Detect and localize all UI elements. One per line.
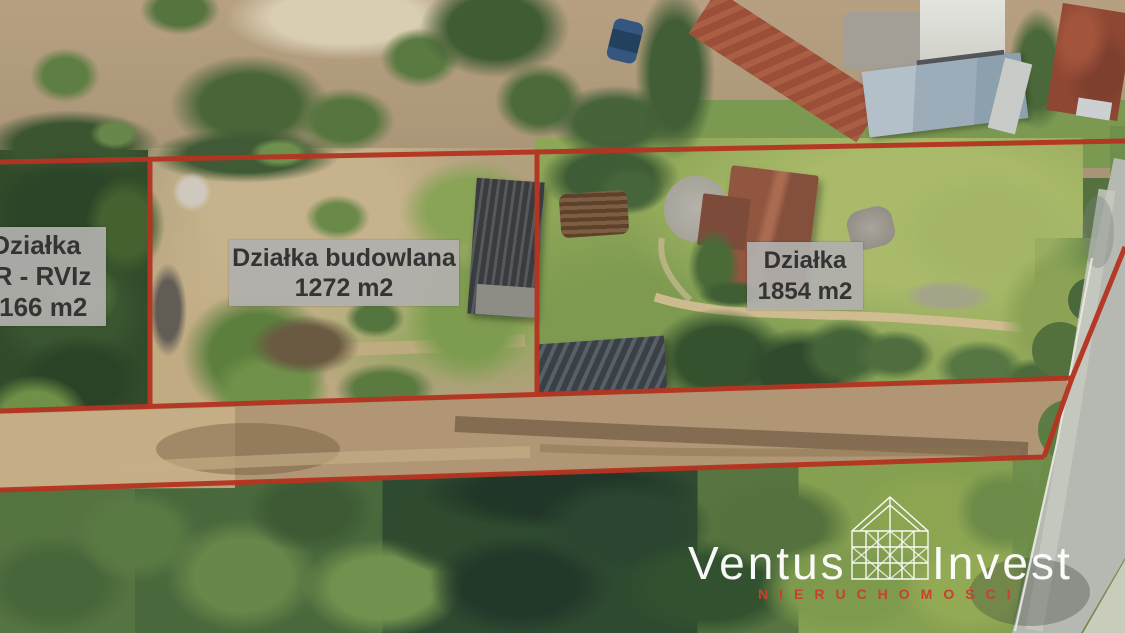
plot-detail: zR - RVIz (0, 261, 106, 292)
watermark-brand-first: Ventus (688, 536, 847, 590)
house-wireframe-icon (851, 496, 929, 582)
road-shadow (1082, 196, 1114, 268)
plot-label-middle: Działka budowlana 1272 m2 (229, 240, 459, 306)
aerial-photo: Działka zR - RVIz 7166 m2 Działka budowl… (0, 0, 1125, 633)
plot-area: 1272 m2 (229, 273, 459, 303)
plot-area: 1854 m2 (747, 276, 863, 307)
plot-name: Działka (747, 245, 863, 276)
plot-label-left: Działka zR - RVIz 7166 m2 (0, 227, 106, 326)
dirt-track (540, 448, 1020, 453)
plot-name: Działka (0, 230, 106, 261)
boundary-top (0, 141, 1125, 162)
plot-name: Działka budowlana (229, 243, 459, 273)
watermark-subtitle: NIERUCHOMOŚCI (758, 586, 1022, 602)
plot-label-right: Działka 1854 m2 (747, 242, 863, 310)
watermark-brand-second: Invest (932, 536, 1073, 590)
plot-area: 7166 m2 (0, 292, 106, 323)
